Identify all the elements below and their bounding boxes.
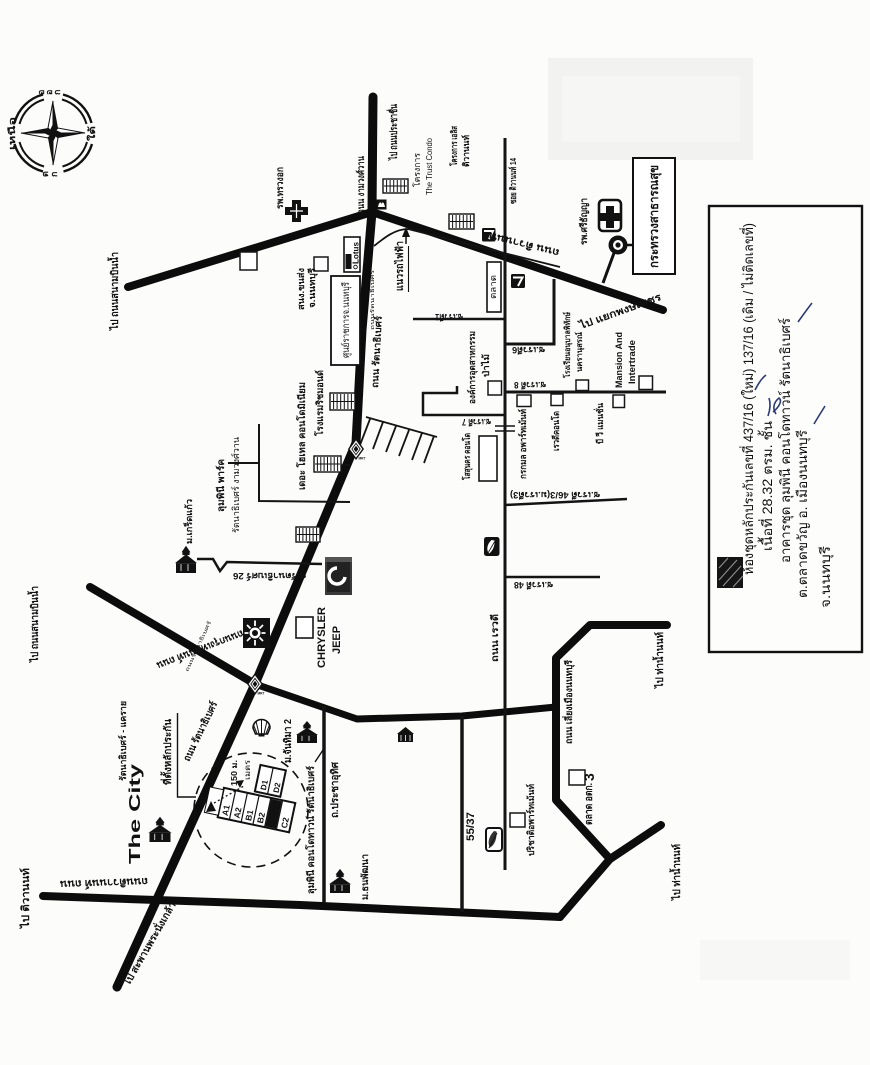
svg-text:ที่ตั้งหลักประกัน: ที่ตั้งหลักประกัน bbox=[160, 719, 174, 785]
svg-text:รพ.ศรีธัญญา: รพ.ศรีธัญญา bbox=[578, 198, 590, 245]
svg-text:Intertrade: Intertrade bbox=[627, 340, 638, 384]
svg-text:MRT: MRT bbox=[258, 692, 265, 696]
svg-text:ถนน เรวดี: ถนน เรวดี bbox=[489, 614, 501, 662]
svg-text:โรงเรียนอนุบาลพิทักษ์: โรงเรียนอนุบาลพิทักษ์ bbox=[562, 311, 573, 379]
svg-text:ม.ธนพัฒนา: ม.ธนพัฒนา bbox=[360, 854, 371, 900]
svg-text:เมตร: เมตร bbox=[243, 759, 252, 780]
svg-text:ถ.ประชาอุทิศ: ถ.ประชาอุทิศ bbox=[329, 761, 341, 818]
svg-text:ไป ท่าน้ำนนท์: ไป ท่าน้ำนนท์ bbox=[669, 844, 683, 901]
svg-text:ใต้: ใต้ bbox=[86, 126, 97, 141]
svg-text:3: 3 bbox=[581, 773, 597, 781]
svg-text:สนง.ขนส่ง: สนง.ขนส่ง bbox=[296, 268, 306, 310]
svg-text:ซ.เรวดี 7: ซ.เรวดี 7 bbox=[462, 417, 491, 427]
svg-text:ลุมพินี พาร์ค: ลุมพินี พาร์ค bbox=[215, 459, 227, 512]
svg-text:ป่าไม้: ป่าไม้ bbox=[480, 354, 491, 377]
svg-text:ติวานนท์: ติวานนท์ bbox=[461, 135, 471, 167]
svg-text:ก: ก bbox=[49, 172, 59, 177]
svg-text:ถนนรัตนาธิเบศร์: ถนนรัตนาธิเบศร์ bbox=[369, 269, 376, 330]
svg-text:รัตนาธิเบศร์ งามวงศ์วาน: รัตนาธิเบศร์ งามวงศ์วาน bbox=[230, 437, 241, 533]
svg-text:รพ.ทรวงอก: รพ.ทรวงอก bbox=[275, 167, 286, 209]
svg-text:ม.เกร็ดแก้ว: ม.เกร็ดแก้ว bbox=[182, 499, 194, 544]
svg-text:เดอะ โฮเทล คอนโดมิเนียม: เดอะ โฮเทล คอนโดมิเนียม bbox=[296, 382, 308, 490]
svg-text:ต.ตลาดขวัญ อ. เมืองนนทบุรี: ต.ตลาดขวัญ อ. เมืองนนทบุรี bbox=[795, 430, 811, 598]
svg-text:กรกมล อพาร์ทเม้นท์: กรกมล อพาร์ทเม้นท์ bbox=[517, 409, 528, 479]
svg-text:ถนน เลี่ยงเมืองนนทบุรี: ถนน เลี่ยงเมืองนนทบุรี bbox=[561, 659, 575, 744]
svg-text:ไป ติวานนท์: ไป ติวานนท์ bbox=[19, 868, 32, 929]
svg-text:ซอย ติวานนท์ 14: ซอย ติวานนท์ 14 bbox=[508, 158, 518, 204]
svg-text:องค์การอุตสาหกรรม: องค์การอุตสาหกรรม bbox=[466, 331, 478, 404]
svg-text:เหนือ: เหนือ bbox=[6, 117, 17, 150]
svg-text:Mansion And: Mansion And bbox=[614, 332, 625, 388]
svg-text:ซ.เรวดี6: ซ.เรวดี6 bbox=[512, 345, 545, 355]
svg-text:ลุมพินี คอนโดทาวน์ รัตนาธิเบ: ลุมพินี คอนโดทาวน์ รัตนาธิเบศร์ bbox=[305, 765, 317, 894]
svg-text:Lotus: Lotus bbox=[352, 241, 361, 264]
svg-text:ก: ก bbox=[52, 90, 62, 95]
svg-text:ตลาด: ตลาด bbox=[488, 275, 498, 299]
svg-text:ไป ถนนสนามบินน้ำ: ไป ถนนสนามบินน้ำ bbox=[27, 586, 41, 663]
svg-text:นครานุสรณ์: นครานุสรณ์ bbox=[574, 331, 585, 372]
svg-text:โครงการ เอลิส: โครงการ เอลิส bbox=[449, 125, 459, 166]
svg-text:รัตนาธิเบศร์ - แคราย: รัตนาธิเบศร์ - แคราย bbox=[117, 701, 128, 781]
svg-text:บี วี แมนชั่น: บี วี แมนชั่น bbox=[593, 402, 605, 444]
svg-text:โรงแรมริชมอนด์: โรงแรมริชมอนด์ bbox=[314, 370, 326, 437]
svg-text:ถนน งามวงศ์วาน: ถนน งามวงศ์วาน bbox=[355, 156, 367, 214]
svg-text:ซ.เรวดี 46/3(ม.เรวดี3): ซ.เรวดี 46/3(ม.เรวดี3) bbox=[510, 490, 600, 500]
svg-text:กระทรวงสาธารณสุข: กระทรวงสาธารณสุข bbox=[647, 165, 662, 268]
svg-text:ปริชาติอพาร์ทเม้นท์: ปริชาติอพาร์ทเม้นท์ bbox=[525, 784, 536, 856]
svg-text:Central: Central bbox=[264, 624, 269, 644]
svg-text:ม.จันทิมา 2: ม.จันทิมา 2 bbox=[282, 719, 294, 763]
svg-text:ไป ถนนสนามบินน้ำ: ไป ถนนสนามบินน้ำ bbox=[107, 252, 121, 331]
svg-text:แนวรถไฟฟ้า: แนวรถไฟฟ้า bbox=[393, 241, 406, 291]
svg-text:จ.นนทบุรี: จ.นนทบุรี bbox=[307, 268, 318, 308]
svg-text:JEEP: JEEP bbox=[331, 626, 343, 654]
svg-text:จ.นนทบุรี: จ.นนทบุรี bbox=[818, 546, 834, 608]
svg-text:CHRYSLER: CHRYSLER bbox=[316, 607, 328, 668]
svg-text:โสสุนคร คอนโด: โสสุนคร คอนโด bbox=[461, 433, 473, 481]
svg-text:ซ.รัตนาธิเบศร์ 26: ซ.รัตนาธิเบศร์ 26 bbox=[233, 571, 306, 582]
svg-text:ไป ท่าน้ำนนท์: ไป ท่าน้ำนนท์ bbox=[652, 632, 666, 689]
svg-text:MRT: MRT bbox=[359, 457, 366, 461]
svg-text:ไป ถนนประชาชื่น: ไป ถนนประชาชื่น bbox=[386, 104, 400, 161]
svg-text:ซ.เรวดี 48: ซ.เรวดี 48 bbox=[514, 580, 553, 590]
svg-text:The City: The City bbox=[127, 764, 144, 864]
svg-text:55/37: 55/37 bbox=[465, 812, 477, 841]
svg-text:ห้องชุดหลักประกันเลขที่ 437/16: ห้องชุดหลักประกันเลขที่ 437/16 (ใหม่) 13… bbox=[739, 223, 757, 575]
svg-text:เนื้อที่ 28.32 ตรม. ชั้น: เนื้อที่ 28.32 ตรม. ชั้น bbox=[757, 421, 775, 551]
svg-text:ตลาด อตก.: ตลาด อตก. bbox=[584, 783, 595, 825]
svg-text:The Trust Condo: The Trust Condo bbox=[424, 138, 434, 195]
svg-text:เรวดีคอนโด: เรวดีคอนโด bbox=[550, 411, 561, 451]
svg-text:150 ม.: 150 ม. bbox=[230, 760, 239, 786]
svg-text:ศูนย์ราชการจ.นนทบุรี: ศูนย์ราชการจ.นนทบุรี bbox=[340, 282, 352, 358]
svg-text:ซ.เรวดี1: ซ.เรวดี1 bbox=[435, 312, 463, 322]
svg-text:ซ.เรวดี 8: ซ.เรวดี 8 bbox=[514, 380, 546, 390]
svg-text:อาคารชุด ลุมพินี คอนโดทาวน์ รั: อาคารชุด ลุมพินี คอนโดทาวน์ รัตนาธิเบศร์ bbox=[777, 318, 794, 563]
svg-text:โครงการ: โครงการ bbox=[412, 153, 422, 187]
